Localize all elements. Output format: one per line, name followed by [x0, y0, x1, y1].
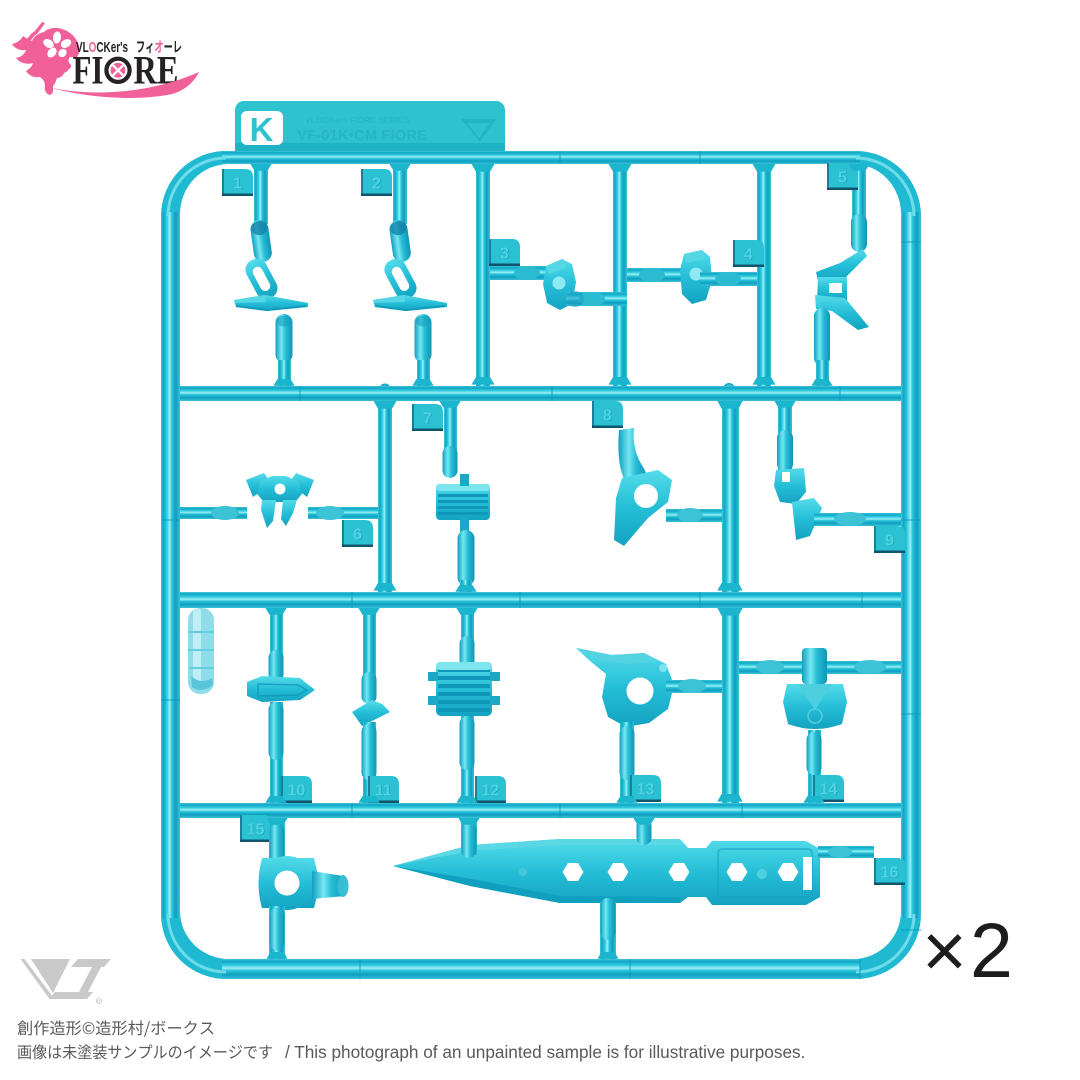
- svg-text:1: 1: [233, 176, 242, 193]
- svg-text:12: 12: [482, 783, 500, 800]
- svg-text:VLOCKers FIORE SERIES: VLOCKers FIORE SERIES: [305, 115, 410, 125]
- svg-text:10: 10: [288, 783, 306, 800]
- svg-text:VF-01K•CM FIORE: VF-01K•CM FIORE: [297, 127, 427, 144]
- svg-text:3: 3: [500, 246, 509, 263]
- svg-text:11: 11: [375, 783, 392, 800]
- svg-text:7: 7: [423, 411, 432, 428]
- svg-text:16: 16: [881, 865, 899, 882]
- svg-text:8: 8: [603, 408, 612, 425]
- svg-text:2: 2: [372, 176, 381, 193]
- svg-text:K: K: [250, 111, 274, 148]
- svg-text:15: 15: [247, 822, 265, 839]
- svg-text:6: 6: [353, 527, 362, 544]
- svg-text:9: 9: [885, 533, 894, 550]
- svg-text:4: 4: [744, 247, 753, 264]
- svg-text:/ This photograph of an unpain: / This photograph of an unpainted sample…: [285, 1042, 805, 1062]
- svg-text:FI: FI: [73, 48, 104, 93]
- svg-text:14: 14: [820, 782, 838, 799]
- svg-text:×2: ×2: [922, 908, 1016, 994]
- svg-text:5: 5: [838, 170, 847, 187]
- svg-text:13: 13: [637, 782, 655, 799]
